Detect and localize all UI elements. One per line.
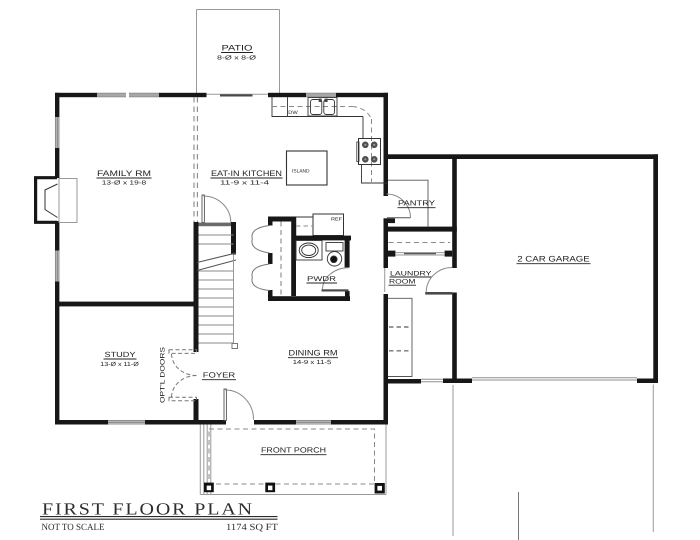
svg-text:FAMILY RM: FAMILY RM	[97, 169, 151, 178]
svg-text:13-Ø x 19-8: 13-Ø x 19-8	[102, 180, 147, 187]
svg-text:STUDY: STUDY	[105, 350, 136, 359]
svg-text:ISLAND: ISLAND	[292, 169, 310, 175]
svg-text:PWDR: PWDR	[307, 276, 336, 283]
svg-text:REF: REF	[331, 217, 342, 222]
svg-text:OPT'L DOORS: OPT'L DOORS	[160, 346, 167, 403]
svg-text:2 CAR GARAGE: 2 CAR GARAGE	[517, 255, 590, 264]
svg-text:1174 SQ FT: 1174 SQ FT	[226, 523, 278, 533]
svg-text:FOYER: FOYER	[203, 371, 236, 380]
svg-text:PATIO: PATIO	[222, 44, 253, 53]
svg-text:FIRST FLOOR PLAN: FIRST FLOOR PLAN	[42, 500, 254, 519]
svg-text:ROOM: ROOM	[389, 278, 416, 285]
svg-text:NOT TO SCALE: NOT TO SCALE	[42, 523, 105, 533]
svg-text:PANTRY: PANTRY	[398, 199, 435, 208]
svg-text:8-Ø x 8-Ø: 8-Ø x 8-Ø	[217, 55, 256, 62]
svg-text:LAUNDRY: LAUNDRY	[390, 270, 432, 277]
svg-text:EAT-IN KITCHEN: EAT-IN KITCHEN	[211, 169, 282, 178]
svg-text:14-9 x 11-5: 14-9 x 11-5	[293, 359, 332, 366]
svg-text:11-9 x 11-4: 11-9 x 11-4	[220, 180, 270, 187]
svg-text:DW: DW	[288, 110, 298, 116]
svg-text:DINING RM: DINING RM	[289, 349, 338, 358]
svg-text:FRONT PORCH: FRONT PORCH	[261, 446, 326, 455]
svg-text:13-Ø x 11-Ø: 13-Ø x 11-Ø	[100, 361, 139, 368]
